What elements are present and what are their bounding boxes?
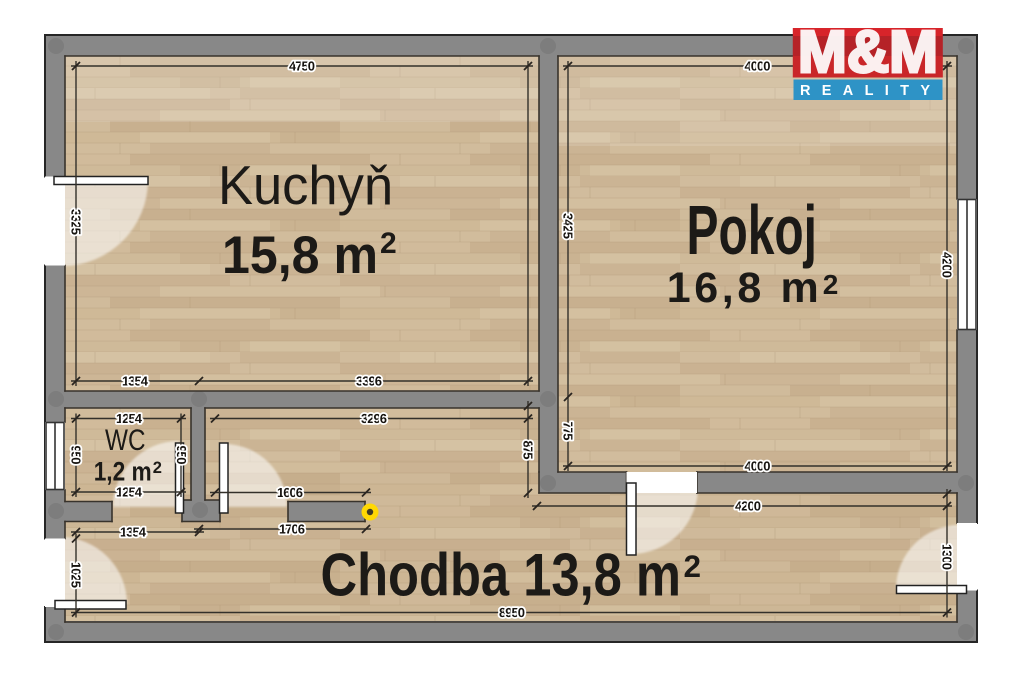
svg-text:1,2 m: 1,2 m	[94, 457, 152, 487]
svg-text:1706: 1706	[279, 522, 305, 537]
svg-text:1606: 1606	[277, 485, 303, 500]
svg-text:WC: WC	[105, 424, 146, 457]
svg-text:Chodba 13,8 m: Chodba 13,8 m	[321, 542, 682, 609]
svg-text:950: 950	[174, 446, 189, 465]
svg-text:2: 2	[684, 548, 702, 584]
svg-text:3396: 3396	[356, 374, 382, 389]
svg-text:4750: 4750	[289, 59, 315, 74]
svg-text:775: 775	[561, 422, 576, 441]
svg-text:1354: 1354	[122, 374, 149, 389]
svg-text:4200: 4200	[940, 252, 955, 278]
svg-text:3425: 3425	[561, 213, 576, 239]
svg-text:2: 2	[380, 227, 397, 260]
svg-text:1025: 1025	[69, 562, 84, 588]
svg-text:2: 2	[153, 459, 162, 477]
svg-text:15,8 m: 15,8 m	[222, 226, 378, 285]
svg-text:1354: 1354	[120, 525, 147, 540]
svg-text:4000: 4000	[745, 59, 771, 74]
svg-text:1254: 1254	[116, 485, 143, 500]
svg-text:1300: 1300	[940, 544, 955, 570]
svg-text:950: 950	[69, 446, 84, 465]
svg-text:Pokoj: Pokoj	[687, 191, 818, 269]
svg-text:3325: 3325	[69, 209, 84, 235]
svg-text:3296: 3296	[361, 411, 387, 426]
svg-text:4000: 4000	[745, 459, 771, 474]
svg-text:875: 875	[521, 441, 536, 460]
svg-text:4200: 4200	[735, 499, 761, 514]
svg-text:16,8 m: 16,8 m	[667, 264, 819, 312]
svg-text:2: 2	[823, 269, 839, 300]
svg-text:Kuchyň: Kuchyň	[218, 154, 393, 216]
svg-text:M&M: M&M	[798, 19, 938, 85]
